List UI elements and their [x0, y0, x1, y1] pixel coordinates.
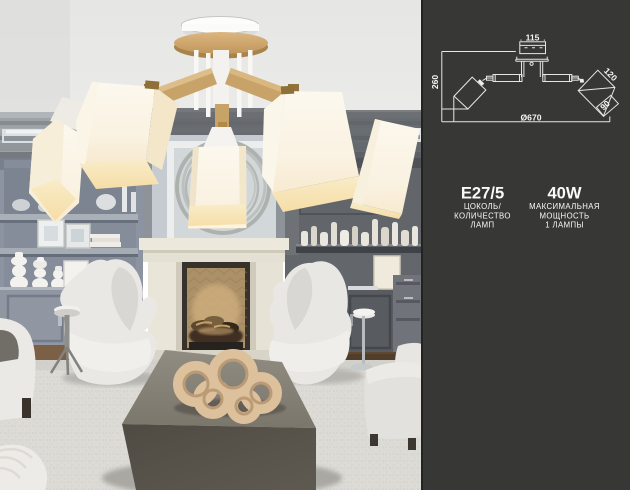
svg-text:ЛАМП: ЛАМП: [470, 221, 494, 230]
svg-text:МАКСИМАЛЬНАЯ: МАКСИМАЛЬНАЯ: [529, 202, 600, 211]
svg-text:260: 260: [430, 75, 440, 90]
svg-text:КОЛИЧЕСТВО: КОЛИЧЕСТВО: [454, 211, 511, 220]
svg-text:ЦОКОЛЬ/: ЦОКОЛЬ/: [464, 202, 502, 211]
svg-text:1 ЛАМПЫ: 1 ЛАМПЫ: [545, 221, 584, 230]
svg-text:115: 115: [526, 33, 540, 43]
svg-text:40W: 40W: [547, 184, 581, 203]
svg-text:E27/5: E27/5: [461, 184, 504, 203]
svg-text:МОЩНОСТЬ: МОЩНОСТЬ: [539, 211, 589, 220]
svg-text:Ø670: Ø670: [520, 113, 541, 123]
